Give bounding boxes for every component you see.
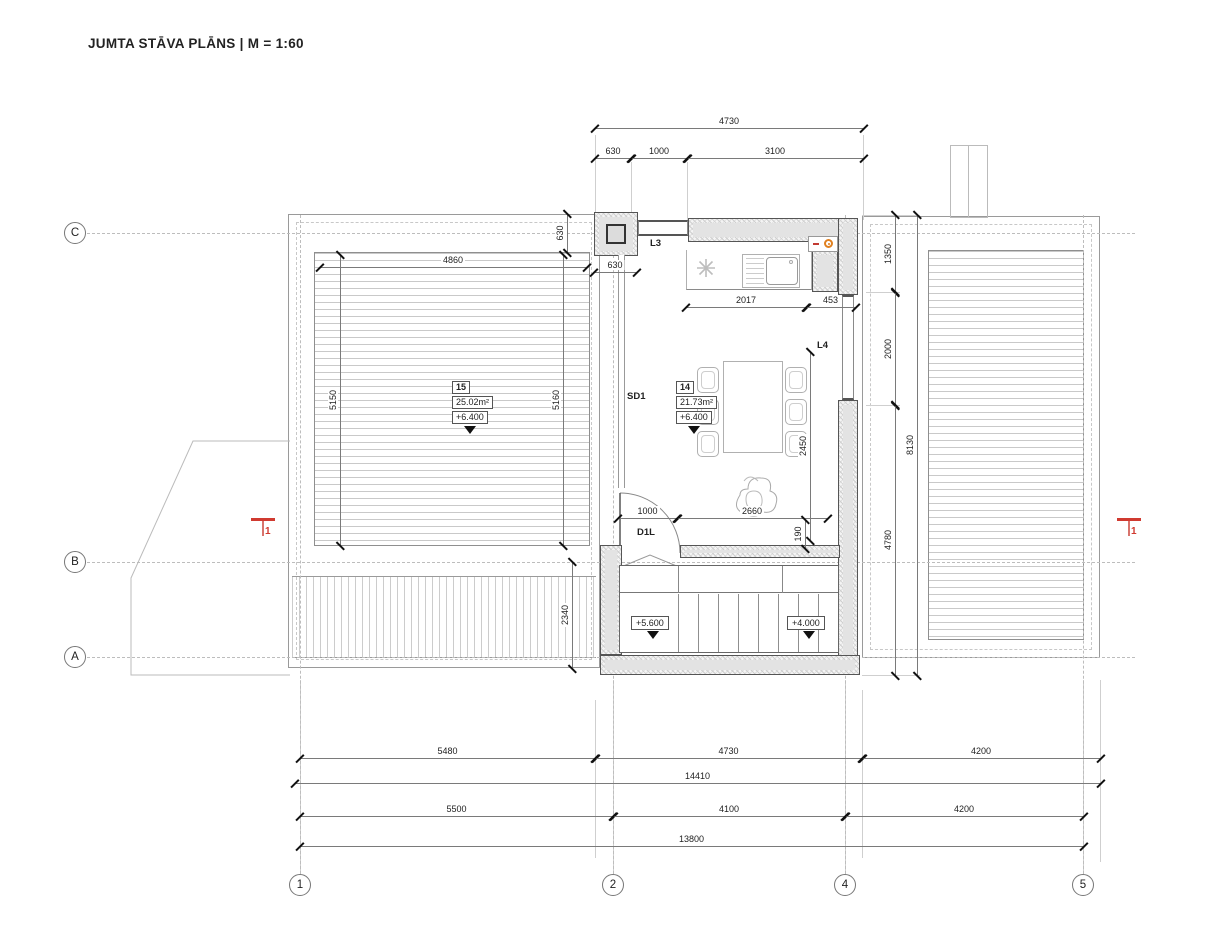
dimension-label: 2660 (740, 506, 764, 516)
dimension-label: 453 (821, 295, 840, 305)
mid-wall-room14 (680, 545, 840, 558)
dimension-label: 630 (555, 223, 565, 242)
chimney-right-outline (950, 145, 988, 218)
chimney-left-flue (606, 224, 626, 244)
section-marker-label: 1 (1131, 526, 1137, 537)
extension-line (595, 700, 596, 858)
extension-line (863, 135, 864, 220)
dimension-label: 2000 (883, 336, 893, 360)
room-number: 15 (452, 381, 470, 394)
door-D1L-swing (615, 488, 685, 558)
room-level: +6.400 (676, 411, 712, 424)
dimension-label: 1350 (883, 241, 893, 265)
extension-line (1100, 680, 1101, 862)
floor-plan-canvas: JUMTA STĀVA PLĀNS | M = 1:60 CBA1245 (0, 0, 1230, 950)
trapezoid-outline (128, 438, 293, 678)
right-wall-upper (838, 218, 858, 295)
chair (697, 431, 719, 457)
room-level: +6.400 (452, 411, 488, 424)
level-marker-icon (647, 631, 659, 639)
grid-bubble-B: B (64, 551, 86, 573)
kitchen-wall-return (812, 250, 838, 292)
chair (785, 367, 807, 393)
extension-line (862, 675, 920, 676)
grid-bubble-2: 2 (602, 874, 624, 896)
dimension-label: 4860 (441, 255, 465, 265)
dimension-label: 4200 (952, 804, 976, 814)
drawing-title: JUMTA STĀVA PLĀNS | M = 1:60 (88, 36, 304, 51)
dimension-label: 5150 (328, 388, 338, 412)
stair-landing-strip (620, 566, 838, 593)
annotation-SD1: SD1 (627, 391, 645, 402)
right-roof-decking (928, 250, 1084, 640)
room-area: 25.02m² (452, 396, 493, 409)
dimension-label: 190 (793, 524, 803, 543)
elevation-tag: +5.600 (631, 616, 669, 639)
dimension-label: 14410 (683, 771, 712, 781)
stair-divider (678, 566, 679, 593)
dimension-label: 4200 (969, 746, 993, 756)
stairs (619, 565, 839, 653)
extension-line (687, 162, 688, 222)
window-L3 (638, 220, 688, 236)
dimension-label: 8130 (905, 433, 915, 457)
sliding-door-SD1 (618, 255, 625, 488)
sink-basin (766, 257, 798, 285)
chair (785, 399, 807, 425)
dimension-label: 5480 (435, 746, 459, 756)
extension-line (631, 162, 632, 218)
right-wall-lower (838, 400, 858, 675)
elevation-value: +5.600 (631, 616, 669, 630)
dimension-label: 3100 (763, 146, 787, 156)
dimension-label: 2017 (734, 295, 758, 305)
room-number: 14 (676, 381, 694, 394)
switch-glyph (813, 243, 819, 245)
dimension-label: 2340 (560, 603, 570, 627)
sink-drainboard (746, 258, 764, 284)
chimney-right-flue-line (968, 145, 969, 218)
grid-bubble-1: 1 (289, 874, 311, 896)
dimension-label: 4730 (717, 116, 741, 126)
dimension-label: 1000 (647, 146, 671, 156)
section-marker-label: 1 (265, 526, 271, 537)
extension-line (862, 215, 920, 216)
grid-bubble-A: A (64, 646, 86, 668)
section-marker-stem (1128, 521, 1130, 536)
room-tag-15: 1525.02m²+6.400 (452, 381, 493, 434)
extension-line (595, 135, 596, 217)
elevation-value: +4.000 (787, 616, 825, 630)
dimension-label: 5160 (551, 388, 561, 412)
grid-bubble-4: 4 (834, 874, 856, 896)
annotation-D1L: D1L (637, 527, 655, 538)
dimension-label: 2450 (798, 434, 808, 458)
grid-line-1 (300, 215, 301, 874)
level-marker-icon (688, 426, 700, 434)
dimension-label: 630 (603, 146, 622, 156)
stair-divider (782, 566, 783, 593)
dimension-label: 1000 (635, 506, 659, 516)
dimension-label: 4780 (883, 528, 893, 552)
hob-icon (696, 258, 716, 278)
extension-line (862, 690, 863, 858)
dimension-label: 13800 (677, 834, 706, 844)
dimension-label: 4100 (717, 804, 741, 814)
dimension-label: 4730 (716, 746, 740, 756)
level-marker-icon (803, 631, 815, 639)
section-marker-stem (262, 521, 264, 536)
dimension-label: 5500 (444, 804, 468, 814)
level-marker-icon (464, 426, 476, 434)
sink-faucet (789, 260, 793, 264)
elevation-tag: +4.000 (787, 616, 825, 639)
room-tag-14: 1421.73m²+6.400 (676, 381, 717, 434)
annotation-L4: L4 (817, 340, 828, 351)
grid-line-5 (1083, 215, 1084, 874)
dimension-label: 630 (605, 260, 624, 270)
dining-table (723, 361, 783, 453)
left-lower-roof-slope (292, 576, 596, 658)
grid-bubble-C: C (64, 222, 86, 244)
bottom-wall (600, 655, 860, 675)
annotation-L3: L3 (650, 238, 661, 249)
outlet-dot-icon (828, 243, 830, 245)
grid-bubble-5: 5 (1072, 874, 1094, 896)
room-area: 21.73m² (676, 396, 717, 409)
